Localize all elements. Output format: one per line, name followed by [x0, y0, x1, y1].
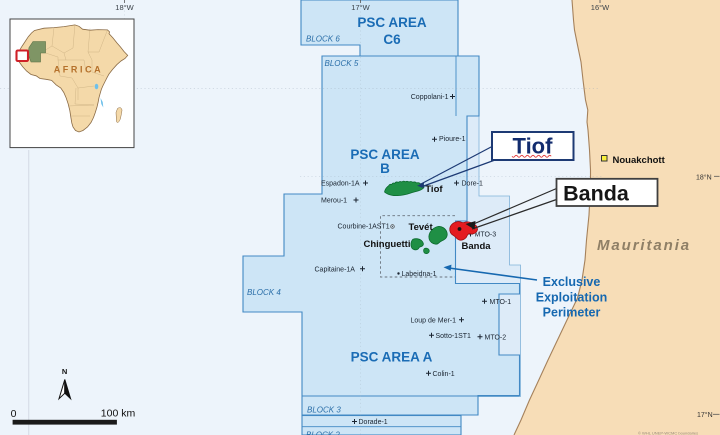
svg-text:Chinguetti: Chinguetti: [364, 239, 411, 250]
svg-text:MTO-1: MTO-1: [490, 299, 512, 306]
svg-text:Perimeter: Perimeter: [543, 306, 601, 320]
svg-text:BLOCK 3: BLOCK 3: [307, 406, 341, 415]
svg-text:BLOCK 4: BLOCK 4: [247, 288, 281, 297]
svg-text:Banda: Banda: [563, 182, 630, 206]
svg-text:N: N: [62, 367, 67, 376]
svg-text:Tiof: Tiof: [425, 184, 443, 195]
svg-text:Espadon-1A: Espadon-1A: [321, 181, 360, 188]
svg-text:Capitaine-1A: Capitaine-1A: [315, 266, 356, 273]
svg-text:BLOCK 5: BLOCK 5: [325, 59, 359, 68]
svg-text:PSC AREA: PSC AREA: [350, 147, 420, 162]
svg-text:17°W: 17°W: [351, 3, 370, 12]
svg-text:16°W: 16°W: [591, 3, 610, 12]
svg-text:PSC AREA: PSC AREA: [357, 15, 427, 30]
svg-text:0: 0: [11, 408, 17, 420]
svg-text:BLOCK 6: BLOCK 6: [306, 35, 340, 44]
svg-text:18°W: 18°W: [115, 3, 134, 12]
svg-text:Mauritania: Mauritania: [597, 237, 691, 254]
svg-text:Colin-1: Colin-1: [433, 371, 455, 378]
svg-text:Sotto-1ST1: Sotto-1ST1: [436, 333, 472, 340]
svg-text:Courbine-1AST1: Courbine-1AST1: [338, 224, 390, 231]
svg-text:BLOCK 2: BLOCK 2: [306, 431, 340, 435]
svg-text:© WHL UNEP-WCMC boundaries: © WHL UNEP-WCMC boundaries: [638, 431, 698, 435]
svg-text:Merou-1: Merou-1: [321, 197, 347, 204]
svg-text:100 km: 100 km: [101, 407, 136, 419]
svg-text:MTO-3: MTO-3: [475, 232, 497, 239]
svg-text:Labeidna-1: Labeidna-1: [402, 271, 437, 278]
svg-text:Tiof: Tiof: [513, 134, 554, 159]
svg-text:PSC AREA A: PSC AREA A: [351, 350, 433, 365]
svg-text:Exclusive: Exclusive: [543, 275, 601, 289]
svg-text:Exploitation: Exploitation: [536, 290, 608, 304]
svg-text:MTO-2: MTO-2: [485, 334, 507, 341]
svg-text:Coppolani-1: Coppolani-1: [411, 94, 449, 101]
svg-text:17°N: 17°N: [697, 411, 713, 419]
svg-text:AFRICA: AFRICA: [54, 65, 104, 75]
svg-text:B: B: [380, 161, 390, 176]
svg-text:Loup de Mer-1: Loup de Mer-1: [411, 317, 457, 324]
svg-text:C6: C6: [383, 32, 401, 47]
svg-text:18°N: 18°N: [696, 173, 712, 181]
svg-text:Dorade-1: Dorade-1: [359, 419, 388, 426]
svg-text:Pioure-1: Pioure-1: [439, 136, 466, 143]
svg-text:Nouakchott: Nouakchott: [613, 155, 666, 166]
svg-text:Dore-1: Dore-1: [462, 180, 484, 187]
svg-text:Banda: Banda: [462, 241, 492, 252]
svg-text:Tevét: Tevét: [409, 222, 434, 233]
